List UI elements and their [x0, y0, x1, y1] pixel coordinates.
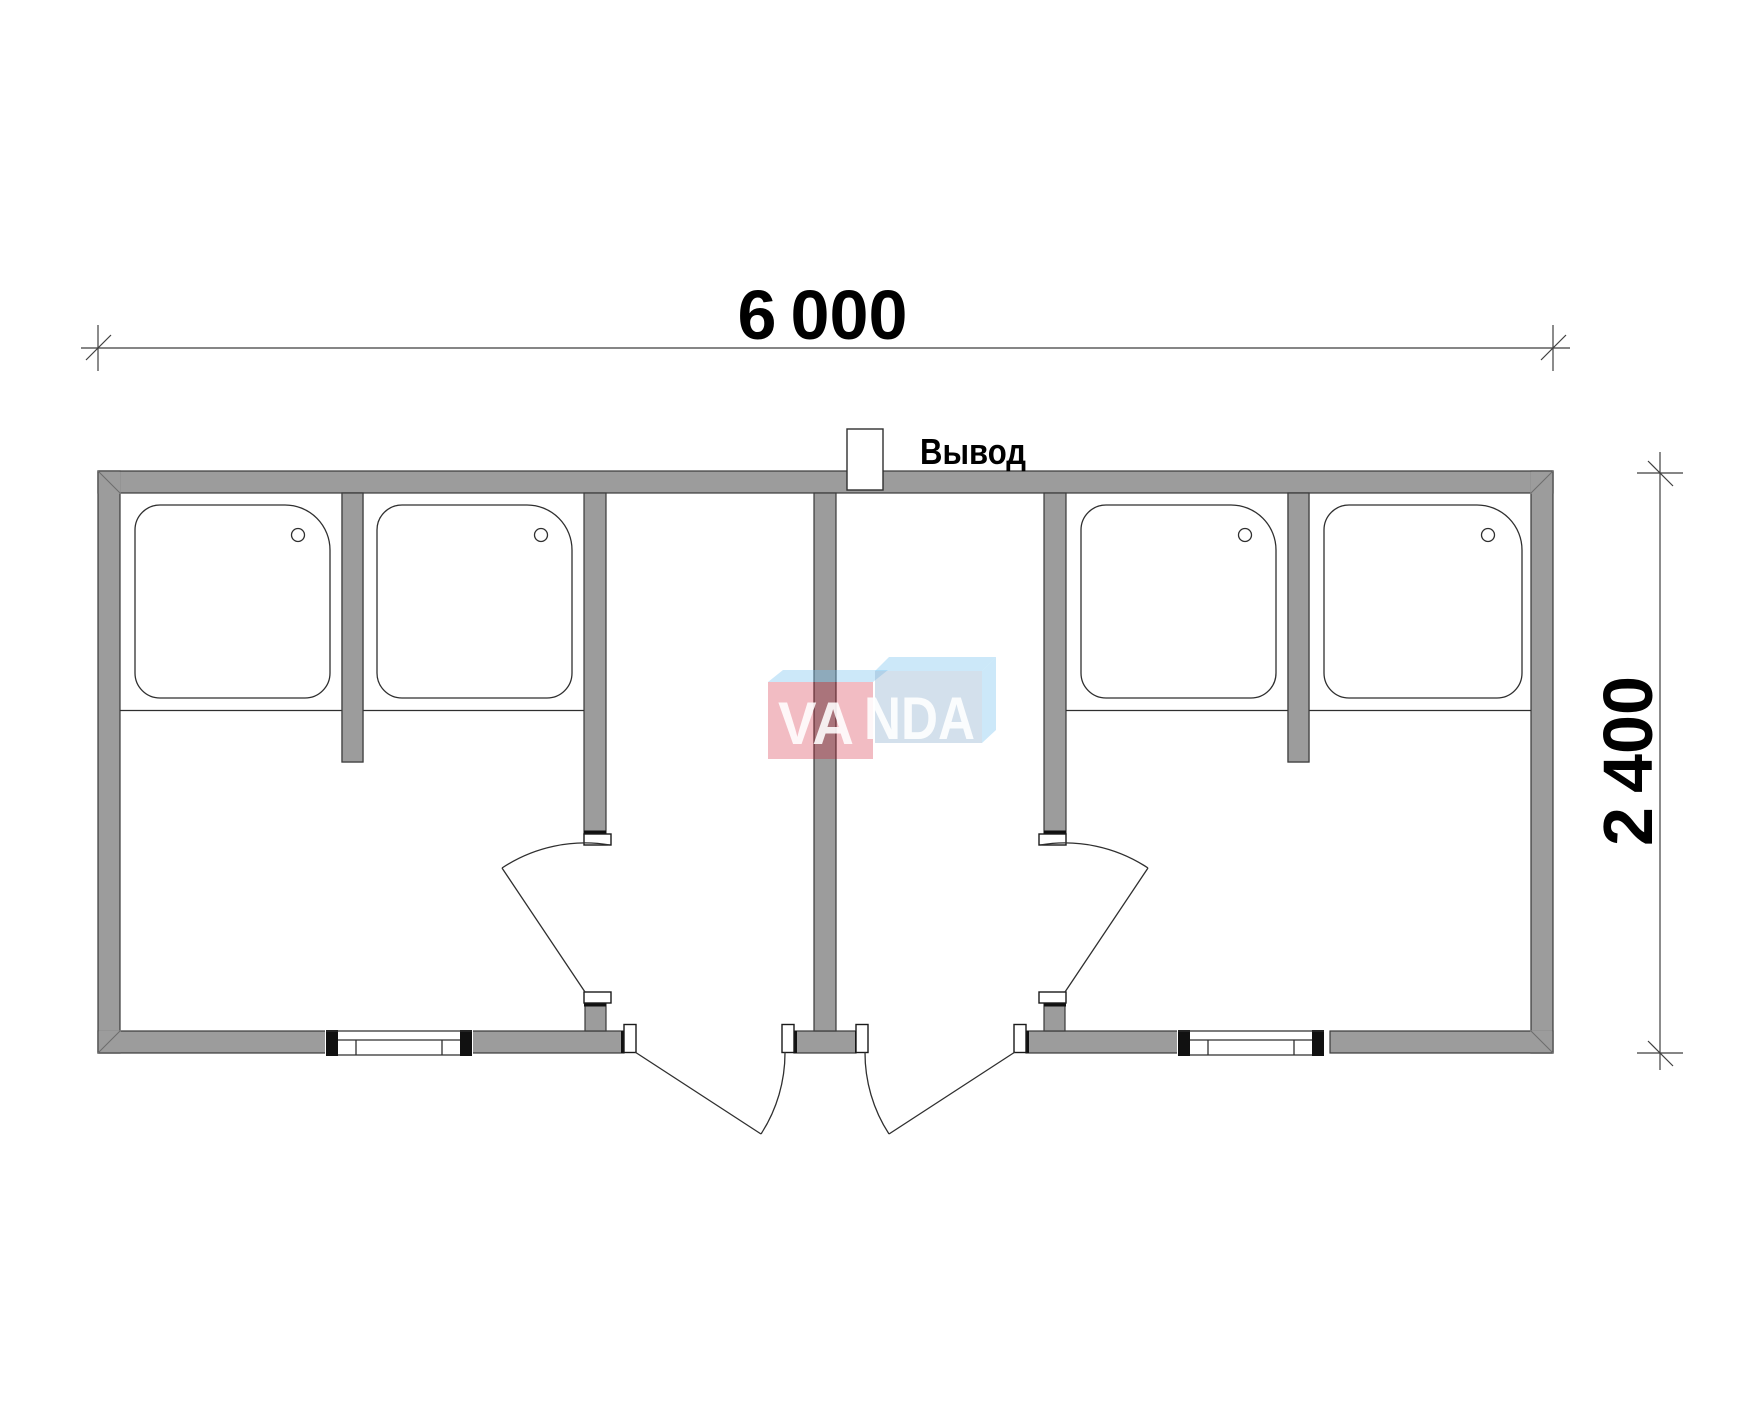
svg-text:NDA: NDA [864, 685, 975, 752]
svg-text:Вывод: Вывод [920, 431, 1026, 472]
svg-text:6 000: 6 000 [738, 276, 908, 354]
svg-text:VA: VA [778, 690, 854, 757]
svg-text:2 400: 2 400 [1589, 676, 1667, 846]
